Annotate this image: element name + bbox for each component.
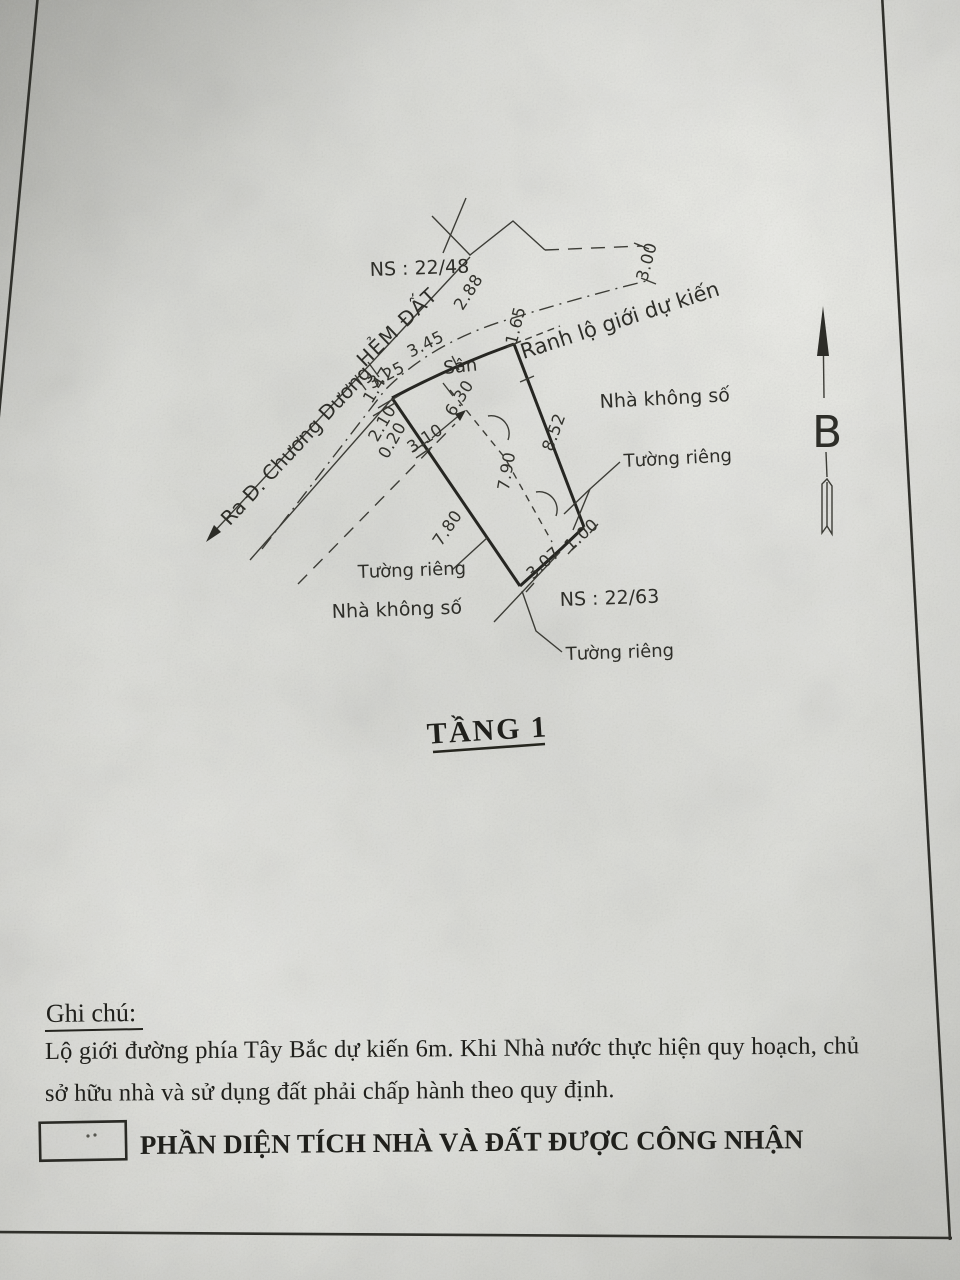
party-wall-bottom-label: Tường riêng [564,640,674,665]
party-wall-left-label: Tường riêng [356,558,466,583]
plan-title-block: TẦNG 1 [426,709,549,752]
notes-line-1: Lộ giới đường phía Tây Bắc dự kiến 6m. K… [45,1032,860,1065]
scanned-cadastral-sheet: { "page": { "plan_title": "TẦNG 1", "nor… [0,0,960,1280]
yard-label: Sân [442,355,478,379]
notes-line-2: sở hữu nhà và sử dụng đất phải chấp hành… [45,1076,615,1107]
legend-label: PHẦN DIỆN TÍCH NHÀ VÀ ĐẤT ĐƯỢC CÔNG NHẬN [140,1123,804,1160]
house-no-number-left-label: Nhà không số [331,596,462,623]
north-label: B [812,407,842,458]
parcel-label-bottom: NS : 22/63 [559,586,659,611]
parcel-label-top: NS : 22/48 [369,256,469,281]
drawing-canvas: B NS : 22/48 HẺM ĐẤT Ra Đ. Chương Dương … [0,0,960,1280]
notes-heading: Ghi chú: [46,998,137,1028]
